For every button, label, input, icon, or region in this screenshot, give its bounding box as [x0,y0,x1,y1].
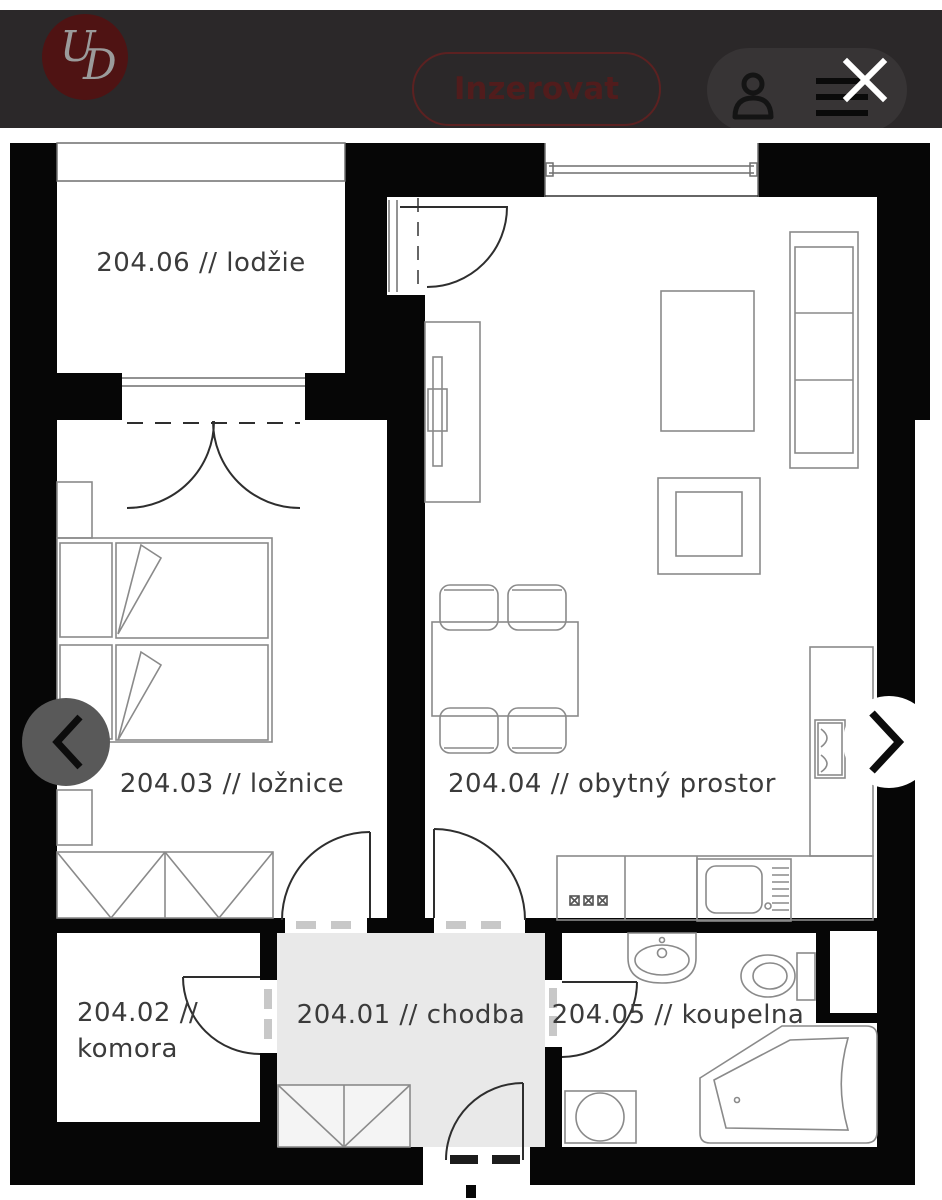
label-komora-line1: 204.02 // [77,998,198,1028]
dining-set [432,585,578,753]
bathroom-sink [628,933,696,983]
radiator [57,482,92,538]
coffee-table [661,291,754,431]
header-bar: U D Inzerovat [0,10,942,128]
burner-marks [570,896,607,905]
bathtub [700,1026,877,1143]
label-lodzie: 204.06 // lodžie [96,248,306,278]
label-loznice: 204.03 // ložnice [120,769,344,799]
sofa [790,232,858,468]
hallway-cabinet [278,1085,410,1147]
floorplan-image: 204.06 // lodžie 204.03 // ložnice 204.0… [0,128,942,1200]
label-chodba: 204.01 // chodba [297,1000,526,1030]
label-obytny-prostor: 204.04 // obytný prostor [448,769,776,799]
prev-photo-button[interactable] [22,698,110,786]
radiator [57,790,92,845]
app-screen: U D Inzerovat [0,0,942,1200]
header-icons [0,10,942,128]
wardrobe [57,852,273,918]
toilet [741,953,815,1000]
tv-cabinet [425,322,480,502]
washing-machine [565,1091,636,1143]
account-icon[interactable] [735,75,771,117]
label-komora-line2: komora [77,1034,178,1064]
label-koupelna: 204.05 // koupelna [552,1000,805,1030]
next-photo-button[interactable] [843,696,935,788]
armchair [658,478,760,574]
